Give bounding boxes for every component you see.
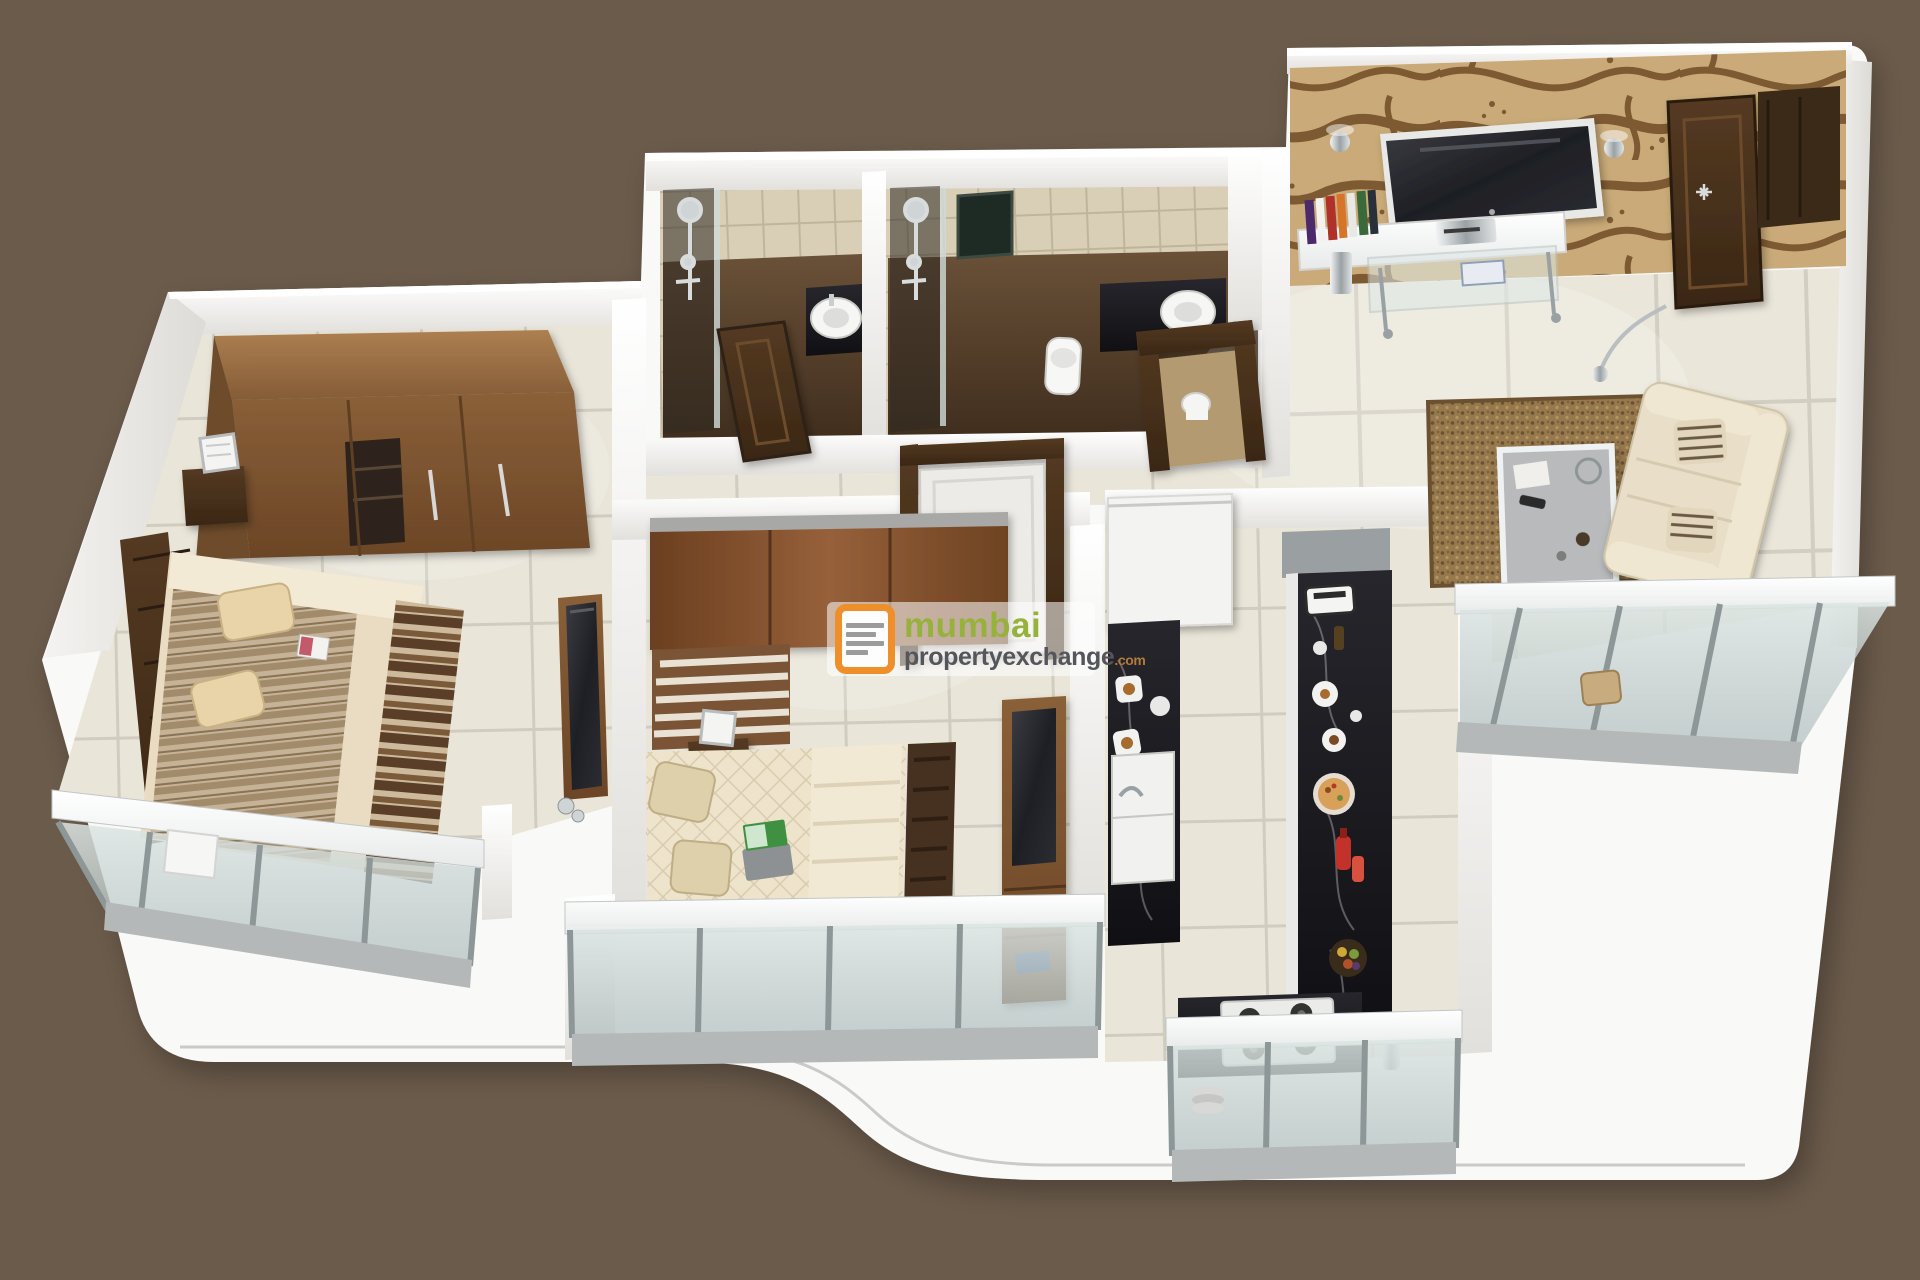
logo-bar [846, 632, 876, 637]
glass-coffee-table [1500, 446, 1617, 586]
bathroom-2-door-frame [1136, 320, 1266, 472]
cage-lamp [700, 710, 735, 745]
chrome-canister [1330, 252, 1352, 294]
chrome-figurine [558, 798, 574, 814]
tv-screen [1012, 708, 1056, 866]
balcony-glass [570, 922, 1100, 1038]
wooden-stool [1580, 670, 1621, 706]
dvd-player [1435, 218, 1497, 246]
pizza-plate [1313, 773, 1355, 815]
shag-runner [904, 742, 956, 914]
logo-bar [846, 623, 884, 628]
right-counter [1282, 528, 1400, 1070]
toilet [1045, 337, 1082, 395]
entrance-door [1668, 96, 1762, 308]
fruit-bowl [1329, 939, 1367, 977]
wardrobe [196, 330, 590, 560]
basin-faucet [829, 294, 834, 306]
watermark-brand-line2: propertyexchange.com [904, 645, 1145, 670]
watermark-panel: mumbai propertyexchange.com [827, 602, 1095, 676]
pillow [647, 760, 717, 823]
bottle [1334, 626, 1344, 650]
striped-cushion [1673, 418, 1728, 466]
mirror-niche [958, 192, 1012, 258]
floorplan-render-page: mumbai propertyexchange.com [0, 0, 1920, 1280]
balcony-cabinet [164, 830, 218, 878]
watermark-brand-line2-main: propertyexchange [904, 643, 1114, 671]
round-plate [1150, 696, 1170, 716]
bed-2 [646, 742, 956, 914]
tv-screen [566, 602, 602, 790]
property-exchange-logo-icon [835, 604, 895, 674]
glass-partition [714, 190, 720, 428]
glass-partition [940, 188, 946, 426]
bathroom-middle-wall [862, 171, 886, 448]
papers [1513, 461, 1550, 489]
toilet-paper-roll [1182, 393, 1210, 420]
cage-lamp [200, 434, 238, 472]
plate-stack [1192, 1086, 1224, 1114]
logo-bar [846, 641, 884, 646]
bedroom-2-balcony [565, 894, 1105, 1066]
watermark-text: mumbai propertyexchange.com [904, 608, 1145, 670]
glassware [1313, 641, 1327, 655]
logo-bar [846, 650, 868, 655]
kitchen-dry-balcony [1166, 1010, 1462, 1182]
kitchen-sink [1112, 752, 1174, 884]
bathroom-2-right-wall [1228, 148, 1262, 332]
bedroom-wall-tv [558, 594, 608, 822]
pillow [670, 840, 732, 897]
striped-cushion [1665, 506, 1718, 553]
magazine [1461, 261, 1504, 286]
watermark-brand-line1: mumbai [904, 608, 1145, 643]
living-room-left-wall [1262, 148, 1290, 478]
toaster [1305, 584, 1355, 615]
divider-wall [612, 298, 646, 919]
magazine [297, 634, 330, 660]
watermark-brand-suffix: .com [1114, 652, 1145, 668]
cup [1350, 710, 1362, 722]
bedroom-2-right-wall [1070, 524, 1105, 919]
balcony-pillar [482, 804, 512, 920]
folded-blanket [808, 744, 902, 914]
